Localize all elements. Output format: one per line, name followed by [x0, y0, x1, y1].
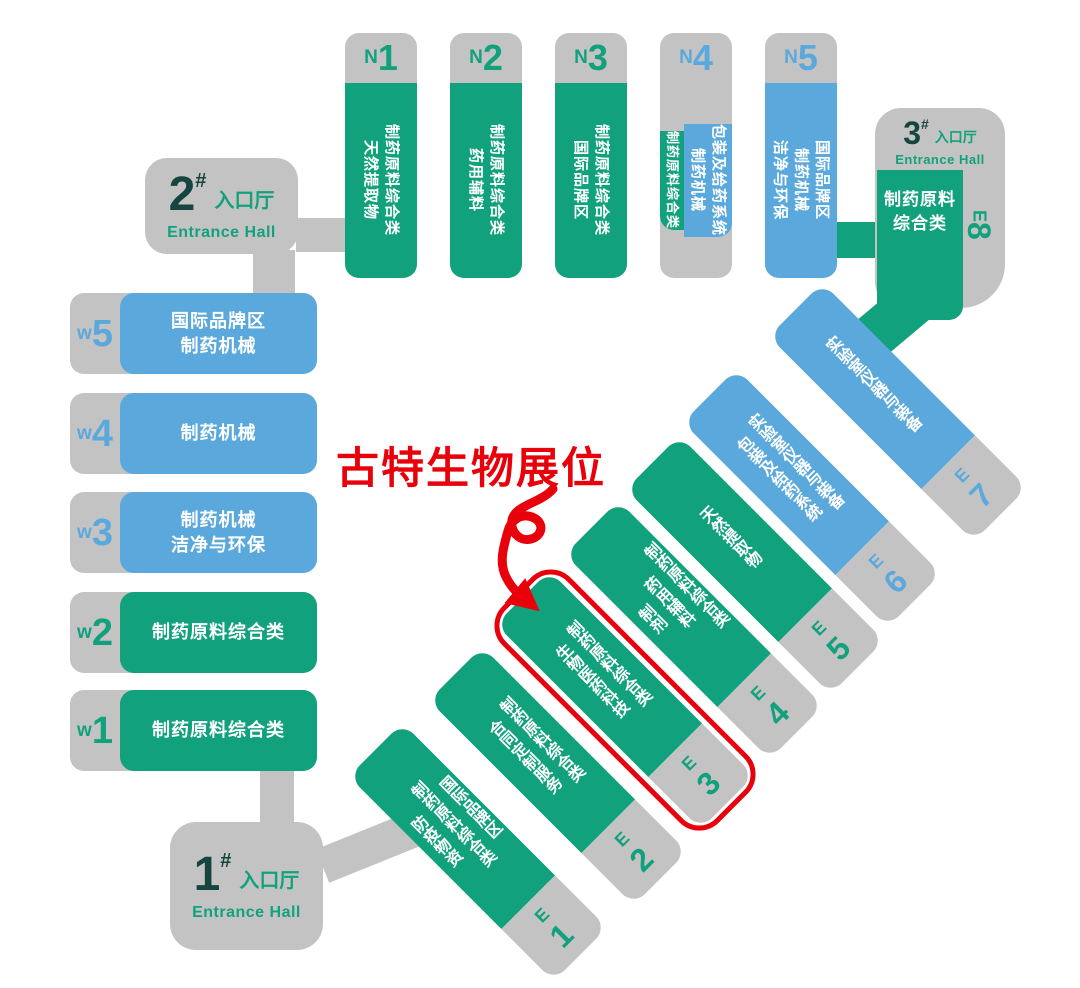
entrance-2-hash: # — [195, 171, 206, 191]
hall-n3-category: 制药原料综合类 — [591, 124, 612, 236]
entrance-1-cn-label: 入口厅 — [239, 871, 299, 891]
hall-w1: w1 制药原料综合类 — [70, 690, 317, 771]
entrance-1-hash: # — [220, 851, 231, 871]
hall-n3: N3 制药原料综合类 国际品牌区 — [555, 33, 627, 278]
hall-n4-label-prefix: N — [679, 47, 693, 69]
hall-w4-label-num: 4 — [92, 415, 113, 453]
hall-n2-category: 制药原料综合类 — [486, 124, 507, 236]
hall-e8: 制药原料 综合类 — [877, 170, 963, 320]
hall-n2-label-prefix: N — [469, 47, 483, 69]
hall-w5-category: 制药机械 — [181, 334, 257, 359]
entrance-2-en-label: Entrance Hall — [167, 224, 276, 242]
hall-e8-category: 综合类 — [893, 212, 947, 236]
connector-entrance2-w5 — [253, 250, 295, 296]
entrance-3-cn-label: 入口厅 — [935, 130, 977, 144]
connector-entrance2-n1 — [296, 218, 348, 252]
hall-n2-label: N2 — [450, 33, 522, 83]
hall-n5-label-prefix: N — [784, 47, 798, 69]
hall-n4-category: 制药原料综合类 — [662, 131, 682, 229]
hall-n4-category: 包装及给药系统 — [708, 124, 729, 236]
hall-e5-category: 天然提取物 — [692, 502, 766, 576]
exhibition-floor-map: N1 制药原料综合类 天然提取物 N2 制药原料综合类 药用辅料 N3 制药原料… — [0, 0, 1080, 988]
hall-n4-label: N4 — [660, 33, 732, 83]
hall-n1-category: 制药原料综合类 — [381, 124, 402, 236]
hall-n1: N1 制药原料综合类 天然提取物 — [345, 33, 417, 278]
hall-w3-category: 洁净与环保 — [171, 533, 266, 558]
hall-n5-category: 制药机械 — [791, 140, 812, 220]
entrance-3-number: 3 — [903, 117, 921, 149]
entrance-3-en-label: Entrance Hall — [895, 152, 985, 167]
hall-w2-label-num: 2 — [92, 614, 113, 652]
hall-n5: N5 国际品牌区 制药机械 洁净与环保 — [765, 33, 837, 278]
hall-w5-label: w5 — [70, 293, 120, 374]
hall-w4-category: 制药机械 — [181, 421, 257, 446]
hall-n3-label-num: 3 — [588, 40, 608, 76]
hall-n1-category: 天然提取物 — [360, 124, 381, 236]
hall-w2-category: 制药原料综合类 — [152, 620, 285, 645]
hall-w5: w5 国际品牌区 制药机械 — [70, 293, 317, 374]
hall-n4-category: 制药机械 — [687, 124, 708, 236]
hall-n3-label: N3 — [555, 33, 627, 83]
hall-e8-category: 制药原料 — [884, 188, 956, 212]
hall-n2-category: 药用辅料 — [465, 124, 486, 236]
hall-e8-label: E8 — [957, 192, 1001, 258]
hall-w3-category: 制药机械 — [181, 508, 257, 533]
entrance-2-cn-label: 入口厅 — [214, 191, 274, 211]
entrance-1-number: 1 — [194, 851, 221, 899]
hall-n1-label-prefix: N — [364, 47, 378, 69]
hall-n3-label-prefix: N — [574, 47, 588, 69]
hall-w1-label-num: 1 — [92, 712, 113, 750]
hall-w3-label-num: 3 — [92, 514, 113, 552]
entrance-2-number: 2 — [169, 171, 196, 219]
hall-w4-label: w4 — [70, 393, 120, 474]
hall-n1-label: N1 — [345, 33, 417, 83]
hall-n5-label-num: 5 — [798, 40, 818, 76]
hall-w3-label: w3 — [70, 492, 120, 573]
hall-w1-label-prefix: w — [77, 720, 92, 742]
hall-n1-label-num: 1 — [378, 40, 398, 76]
hall-w5-label-prefix: w — [77, 323, 92, 345]
hall-w2-label-prefix: w — [77, 622, 92, 644]
connector-n5-e8 — [835, 222, 879, 258]
entrance-hall-1: 1#入口厅 Entrance Hall — [170, 822, 323, 950]
hall-w1-category: 制药原料综合类 — [152, 718, 285, 743]
hall-w5-category: 国际品牌区 — [171, 309, 266, 334]
hall-w3-label-prefix: w — [77, 522, 92, 544]
hall-n5-category: 洁净与环保 — [770, 140, 791, 220]
entrance-3-hash: # — [921, 117, 929, 131]
entrance-hall-3: 3#入口厅 Entrance Hall — [875, 114, 1005, 170]
hall-n2-label-num: 2 — [483, 40, 503, 76]
entrance-1-en-label: Entrance Hall — [192, 904, 301, 922]
hall-w4-label-prefix: w — [77, 423, 92, 445]
entrance-hall-2: 2#入口厅 Entrance Hall — [145, 158, 298, 254]
hall-e8-label-num: 8 — [963, 222, 995, 240]
hall-n5-category: 国际品牌区 — [812, 140, 833, 220]
booth-annotation-label: 古特生物展位 — [336, 434, 606, 496]
hall-w5-label-num: 5 — [92, 315, 113, 353]
hall-w2: w2 制药原料综合类 — [70, 592, 317, 673]
hall-n2: N2 制药原料综合类 药用辅料 — [450, 33, 522, 278]
hall-e8-label-prefix: E — [969, 210, 990, 222]
hall-n4-label-num: 4 — [693, 40, 713, 76]
hall-n5-label: N5 — [765, 33, 837, 83]
hall-n4: N4 制药原料综合类 包装及给药系统 制药机械 — [660, 33, 732, 278]
hall-w2-label: w2 — [70, 592, 120, 673]
connector-w1-entrance1 — [260, 768, 294, 826]
hall-n3-category: 国际品牌区 — [570, 124, 591, 236]
hall-w1-label: w1 — [70, 690, 120, 771]
hall-e7-category: 实验室仪器与装备 — [818, 332, 925, 439]
hall-w3: w3 制药机械 洁净与环保 — [70, 492, 317, 573]
hall-w4: w4 制药机械 — [70, 393, 317, 474]
